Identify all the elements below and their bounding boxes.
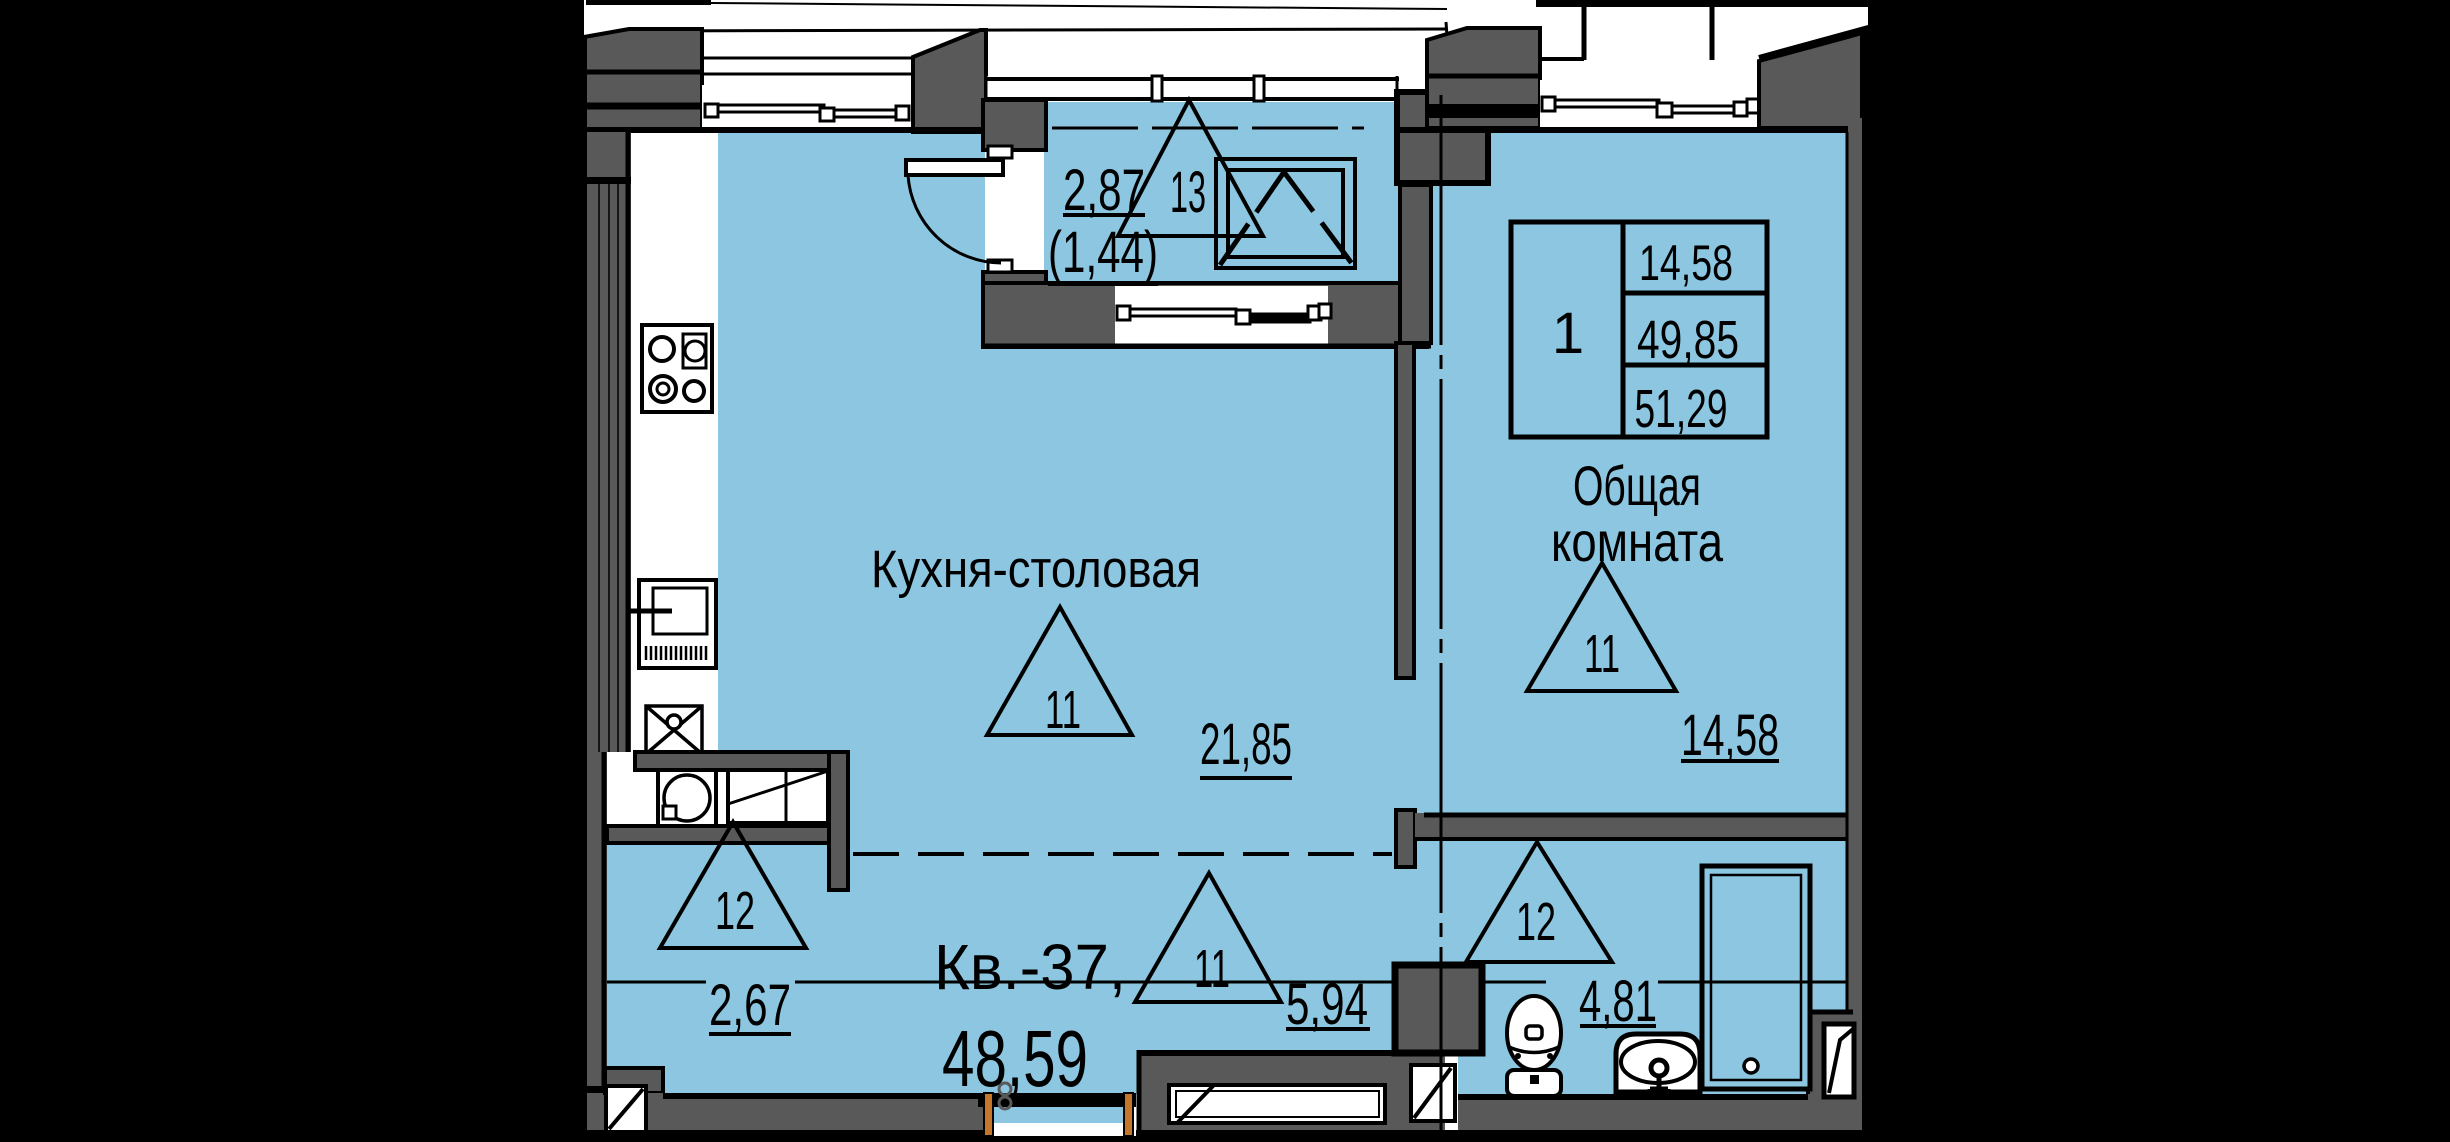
svg-text:11: 11 [1584,624,1620,684]
svg-text:49,85: 49,85 [1637,310,1739,370]
svg-text:1: 1 [1552,301,1584,366]
svg-text:Кухня-столовая: Кухня-столовая [871,540,1201,599]
svg-text:14,58: 14,58 [1681,703,1779,768]
svg-text:Кв.-37,: Кв.-37, [934,931,1126,1003]
svg-text:Общая: Общая [1573,454,1701,517]
svg-text:14,58: 14,58 [1639,235,1733,291]
svg-text:48,59: 48,59 [942,1014,1088,1103]
svg-text:11: 11 [1194,939,1230,999]
svg-text:комната: комната [1551,510,1724,573]
svg-text:2,67: 2,67 [709,973,791,1038]
svg-text:12: 12 [715,881,755,941]
svg-text:11: 11 [1045,680,1081,740]
svg-text:(1,44): (1,44) [1048,220,1158,285]
svg-text:51,29: 51,29 [1635,379,1728,439]
svg-text:13: 13 [1170,160,1206,225]
svg-text:12: 12 [1516,892,1556,952]
svg-text:21,85: 21,85 [1200,712,1292,777]
